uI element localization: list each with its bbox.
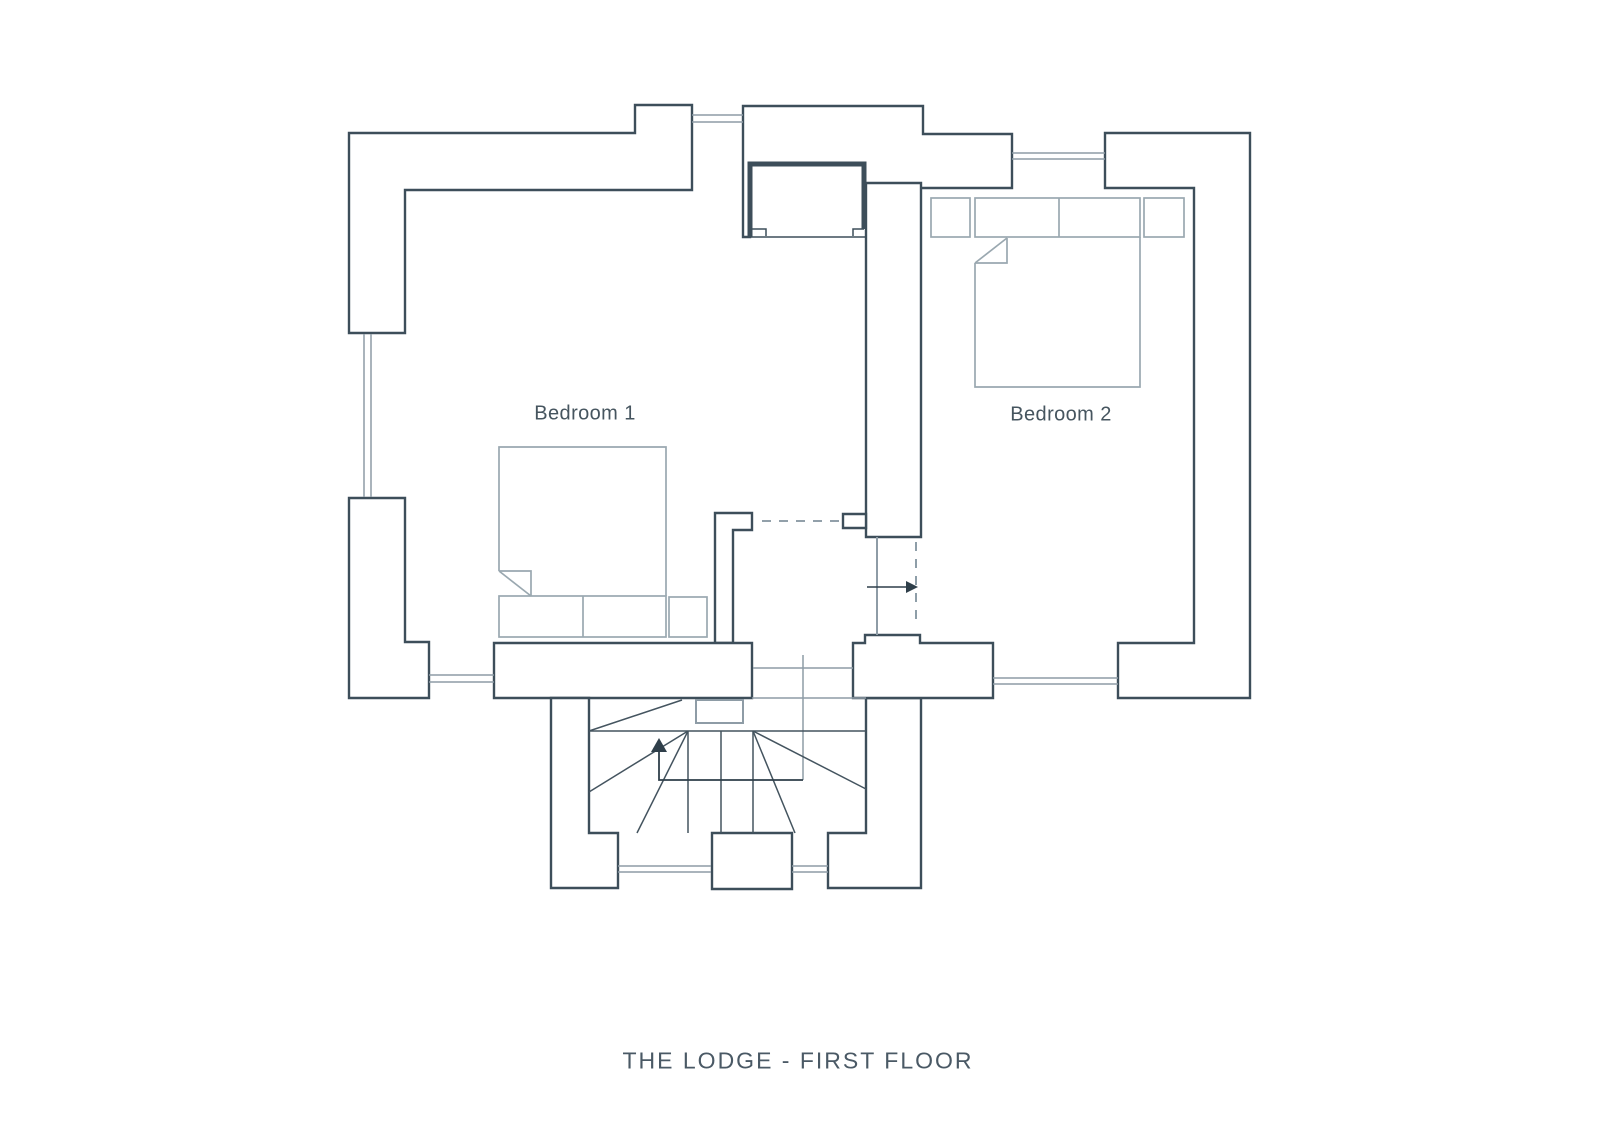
stair-winder-top — [589, 700, 682, 731]
wall-t-block — [853, 635, 993, 698]
closet-interior-mask — [752, 166, 862, 236]
wall-landing-strip — [866, 183, 921, 537]
bed1-bedside-table — [669, 597, 707, 637]
stair-winder-right-2 — [753, 731, 795, 833]
bed1-mattress — [499, 447, 666, 596]
stair-box — [696, 700, 743, 723]
bed1-duvet-fold-diagonal — [499, 571, 531, 596]
bed2-bedside-table-right — [1144, 198, 1184, 237]
bed2-mattress — [975, 237, 1140, 387]
chimney-bay — [712, 833, 792, 889]
wall-bedroom1-door-jamb — [715, 513, 752, 643]
floorplan-svg — [0, 0, 1600, 1131]
stair-up-arrow-line — [659, 751, 803, 780]
bed2-bedside-table-left — [931, 198, 970, 237]
bed2-duvet-fold-diagonal — [975, 238, 1007, 263]
wall-right-wing — [1105, 133, 1250, 698]
wall-stair-left — [551, 698, 618, 888]
room-label-bedroom-1: Bedroom 1 — [534, 403, 635, 426]
bed2-pillow-row — [975, 198, 1140, 237]
plan-title: THE LODGE - FIRST FLOOR — [623, 1048, 974, 1075]
wall-left-lower — [349, 498, 429, 698]
wall-stair-right — [828, 698, 921, 888]
wall-bottom-left-band — [494, 643, 752, 698]
floorplan-page: Bedroom 1 Bedroom 2 THE LODGE - FIRST FL… — [0, 0, 1600, 1131]
wall-door-jamb-cap — [843, 514, 866, 528]
wall-top-left — [349, 105, 692, 333]
room-label-bedroom-2: Bedroom 2 — [1010, 404, 1111, 427]
